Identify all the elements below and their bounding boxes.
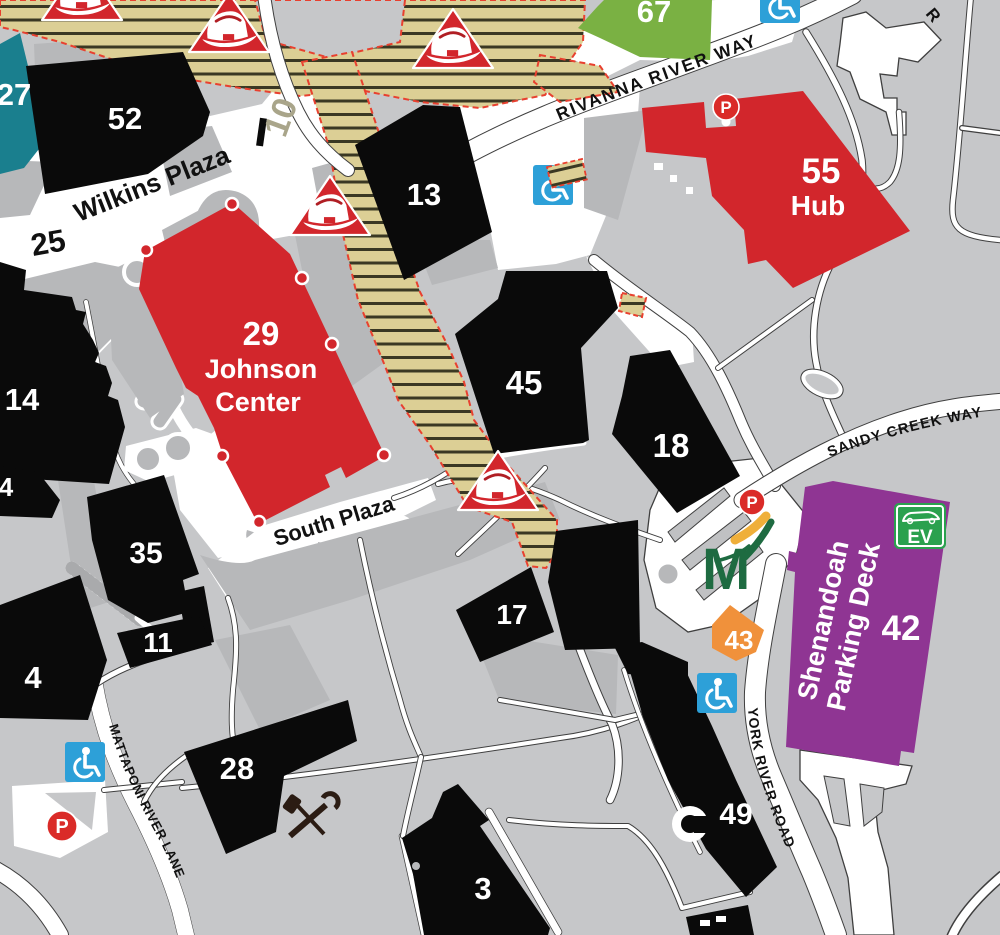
svg-text:43: 43 xyxy=(725,625,754,655)
svg-text:49: 49 xyxy=(719,798,752,831)
svg-text:55: 55 xyxy=(802,152,841,191)
svg-text:3: 3 xyxy=(474,871,491,906)
svg-text:29: 29 xyxy=(243,315,280,352)
svg-text:45: 45 xyxy=(506,364,543,401)
svg-text:42: 42 xyxy=(882,609,921,648)
svg-text:14: 14 xyxy=(5,382,40,417)
svg-text:Johnson: Johnson xyxy=(205,354,318,384)
svg-text:35: 35 xyxy=(129,537,162,570)
svg-text:13: 13 xyxy=(407,177,441,212)
svg-text:EV: EV xyxy=(907,527,933,548)
svg-text:27: 27 xyxy=(0,77,31,112)
svg-text:17: 17 xyxy=(496,599,527,630)
svg-text:4: 4 xyxy=(0,472,14,502)
svg-text:M: M xyxy=(702,537,750,602)
svg-text:28: 28 xyxy=(220,751,254,786)
svg-text:4: 4 xyxy=(24,660,42,695)
svg-text:Center: Center xyxy=(215,387,301,417)
svg-text:11: 11 xyxy=(143,627,173,658)
svg-text:25: 25 xyxy=(28,222,68,262)
svg-text:67: 67 xyxy=(637,0,671,29)
svg-text:52: 52 xyxy=(108,101,142,136)
svg-text:18: 18 xyxy=(653,427,690,464)
svg-text:Hub: Hub xyxy=(791,190,845,221)
